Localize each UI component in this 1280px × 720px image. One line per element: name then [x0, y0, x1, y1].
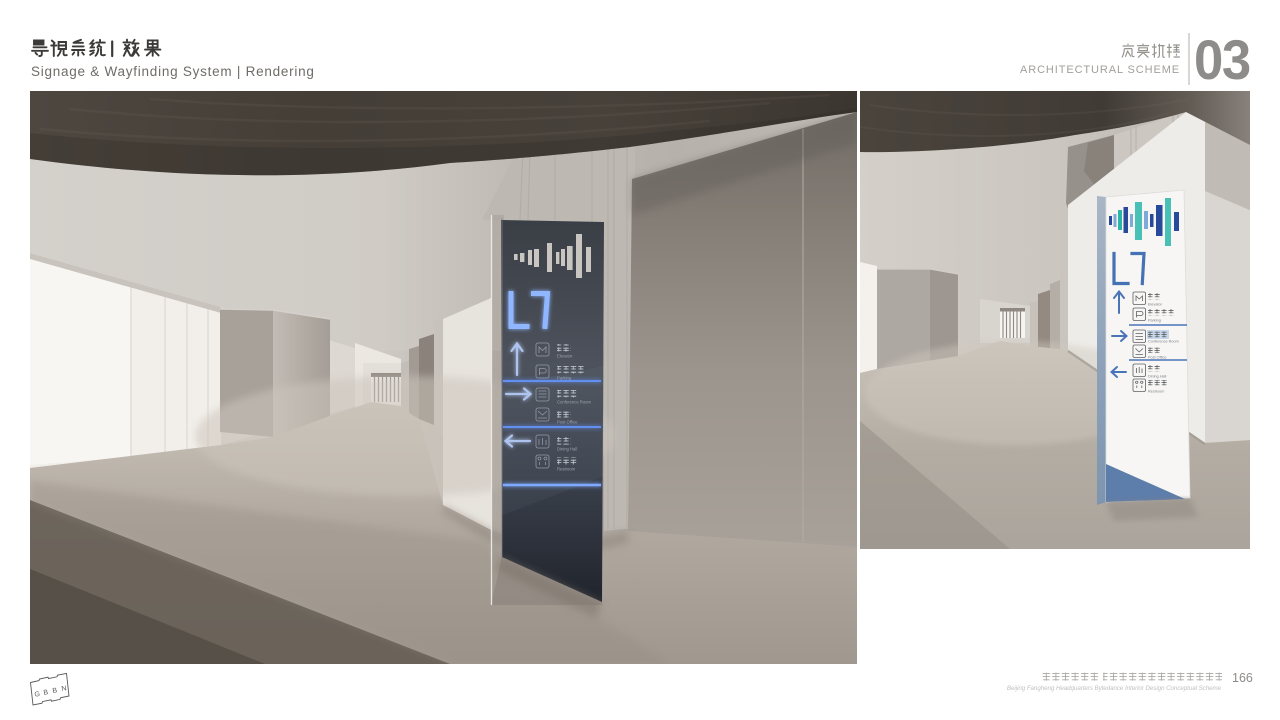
svg-text:Restroom: Restroom	[1148, 390, 1164, 394]
svg-text:Elevator: Elevator	[557, 354, 573, 359]
svg-text:Post Office: Post Office	[1148, 356, 1167, 360]
svg-text:N: N	[61, 685, 67, 693]
svg-text:Conference Room: Conference Room	[1148, 340, 1179, 344]
svg-text:Restroom: Restroom	[557, 467, 576, 472]
svg-text:Conference Room: Conference Room	[557, 400, 591, 405]
svg-text:B: B	[52, 687, 58, 695]
svg-text:Parking: Parking	[1148, 319, 1161, 323]
svg-text:Post Office: Post Office	[557, 420, 578, 425]
svg-text:Elevator: Elevator	[1148, 303, 1163, 307]
svg-text:Dining Hall: Dining Hall	[557, 447, 577, 452]
svg-text:Parking: Parking	[557, 376, 572, 381]
svg-text:Dining Hall: Dining Hall	[1148, 375, 1167, 379]
svg-text:B: B	[43, 689, 49, 697]
svg-text:G: G	[34, 691, 41, 699]
